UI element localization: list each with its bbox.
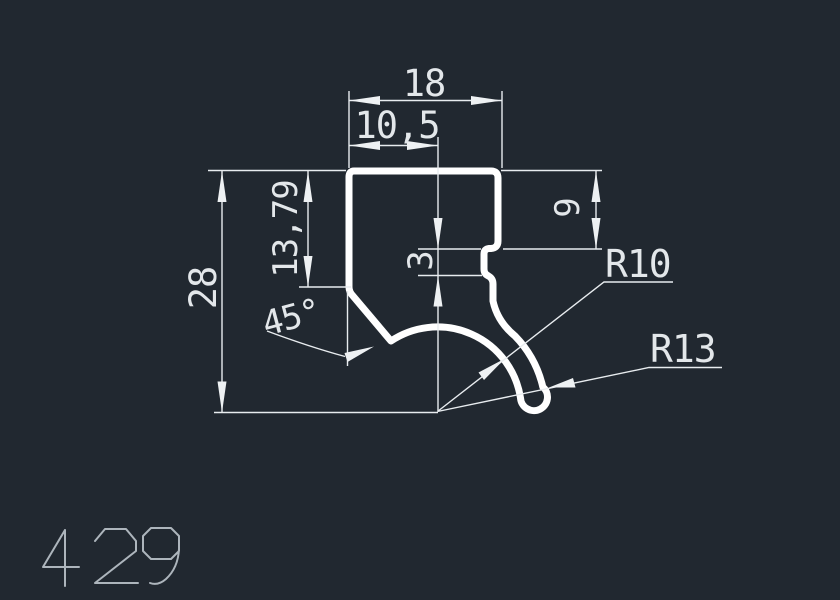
arrowhead [549,378,576,388]
arrowhead-top [218,171,227,202]
dim-label-r10: R10 [605,242,671,286]
dim-label-10-5: 10,5 [354,104,439,147]
profile-path [349,171,547,411]
dim-label-13-79: 13,79 [266,180,306,277]
arrowhead-top [592,171,601,202]
dim-label-18: 18 [403,62,446,105]
dim-label-45: 45° [258,291,325,345]
arrowhead-up [434,276,443,307]
arrowhead-bottom [592,218,601,249]
dim-label-28: 28 [182,267,225,310]
cad-canvas: 18 10,5 28 13,79 3 9 [0,0,840,600]
dim-label-r13: R13 [650,327,716,371]
extension-lines [208,171,438,413]
dim-label-3: 3 [401,251,441,270]
digit-2 [95,529,138,583]
dimension-right-step: 9 [501,171,602,250]
arrowhead-right [471,96,502,105]
part-number-label: 429 [0,0,179,586]
dimension-height-mid: 13,79 [266,171,351,288]
digit-4 [43,530,79,586]
dimension-notch: 3 [401,218,482,307]
arrowhead [479,359,506,381]
arrowhead [345,347,375,363]
profile-outline [349,171,547,411]
digit-9 [143,528,179,584]
arrowhead-down [434,218,443,249]
arrowhead-bottom [218,382,227,413]
leader-line [438,282,674,412]
cad-drawing: 18 10,5 28 13,79 3 9 [0,0,840,600]
dim-label-9: 9 [548,198,588,217]
